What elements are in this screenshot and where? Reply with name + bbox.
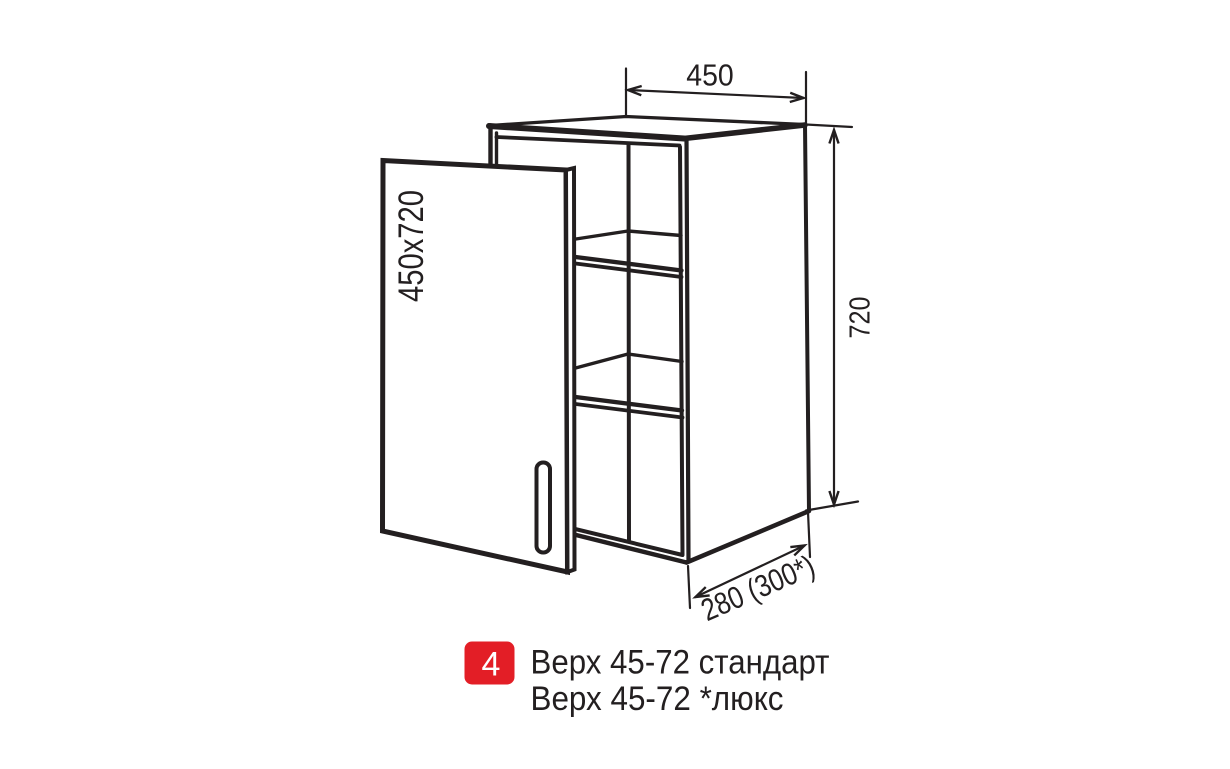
svg-text:720: 720 xyxy=(845,297,877,339)
svg-text:4: 4 xyxy=(482,646,501,684)
svg-text:450x720: 450x720 xyxy=(392,190,431,302)
svg-text:Верх 45-72 стандарт: Верх 45-72 стандарт xyxy=(531,644,830,682)
svg-text:Верх 45-72 *люкс: Верх 45-72 *люкс xyxy=(531,680,784,718)
svg-text:450: 450 xyxy=(686,58,734,93)
